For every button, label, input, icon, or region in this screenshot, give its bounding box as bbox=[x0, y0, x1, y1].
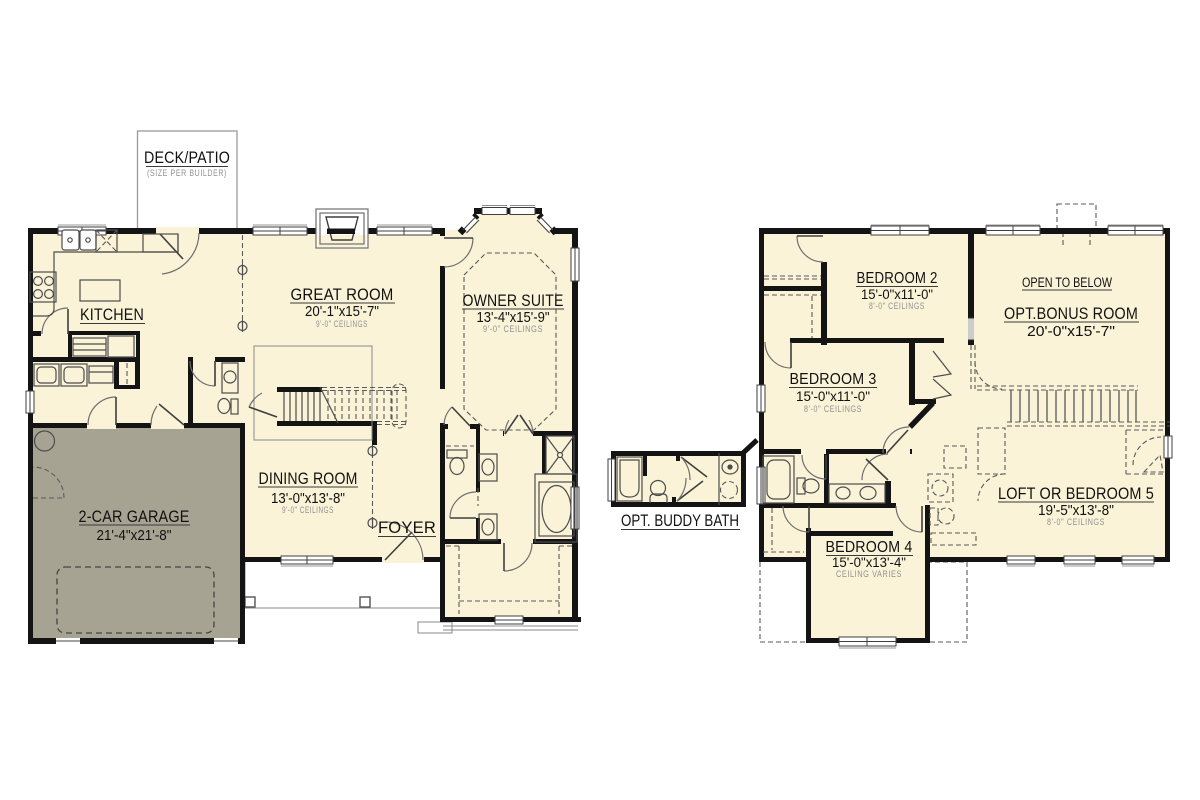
svg-text:DECK/PATIO: DECK/PATIO bbox=[144, 148, 230, 167]
svg-text:KITCHEN: KITCHEN bbox=[80, 305, 144, 324]
svg-text:GREAT ROOM: GREAT ROOM bbox=[291, 285, 394, 304]
svg-text:BEDROOM 4: BEDROOM 4 bbox=[826, 539, 913, 556]
svg-text:BEDROOM 2: BEDROOM 2 bbox=[857, 270, 938, 287]
svg-text:20'-0"x15'-7": 20'-0"x15'-7" bbox=[1027, 324, 1115, 340]
svg-text:OPT. BUDDY BATH: OPT. BUDDY BATH bbox=[621, 512, 739, 530]
svg-text:DINING ROOM: DINING ROOM bbox=[259, 469, 358, 488]
svg-text:9'-0" CEILINGS: 9'-0" CEILINGS bbox=[483, 324, 543, 335]
svg-text:8'-0" CEILINGS: 8'-0" CEILINGS bbox=[1047, 517, 1105, 528]
svg-text:BEDROOM 3: BEDROOM 3 bbox=[790, 371, 877, 388]
svg-text:OWNER SUITE: OWNER SUITE bbox=[463, 291, 564, 310]
svg-text:2-CAR GARAGE: 2-CAR GARAGE bbox=[79, 507, 190, 526]
svg-text:8'-0" CEILINGS: 8'-0" CEILINGS bbox=[804, 404, 862, 415]
svg-text:9'-0" CEILINGS: 9'-0" CEILINGS bbox=[282, 505, 334, 516]
svg-text:OPEN TO BELOW: OPEN TO BELOW bbox=[1022, 275, 1112, 290]
svg-text:OPT.BONUS ROOM: OPT.BONUS ROOM bbox=[1004, 304, 1138, 323]
svg-text:LOFT OR BEDROOM 5: LOFT OR BEDROOM 5 bbox=[998, 484, 1154, 503]
svg-text:FOYER: FOYER bbox=[378, 518, 436, 537]
svg-text:21'-4"x21'-8": 21'-4"x21'-8" bbox=[97, 528, 172, 544]
svg-text:8'-0" CEILINGS: 8'-0" CEILINGS bbox=[869, 301, 925, 312]
svg-text:(SIZE PER BUILDER): (SIZE PER BUILDER) bbox=[147, 168, 227, 179]
svg-text:15'-0"x11'-0": 15'-0"x11'-0" bbox=[796, 389, 870, 404]
svg-text:15'-0"x13'-4": 15'-0"x13'-4" bbox=[832, 555, 906, 570]
svg-text:15'-0"x11'-0": 15'-0"x11'-0" bbox=[861, 287, 933, 302]
svg-text:CEILING VARIES: CEILING VARIES bbox=[836, 569, 902, 580]
svg-text:20'-1"x15'-7": 20'-1"x15'-7" bbox=[305, 304, 379, 320]
svg-text:9'-0" CEILINGS: 9'-0" CEILINGS bbox=[316, 319, 368, 330]
